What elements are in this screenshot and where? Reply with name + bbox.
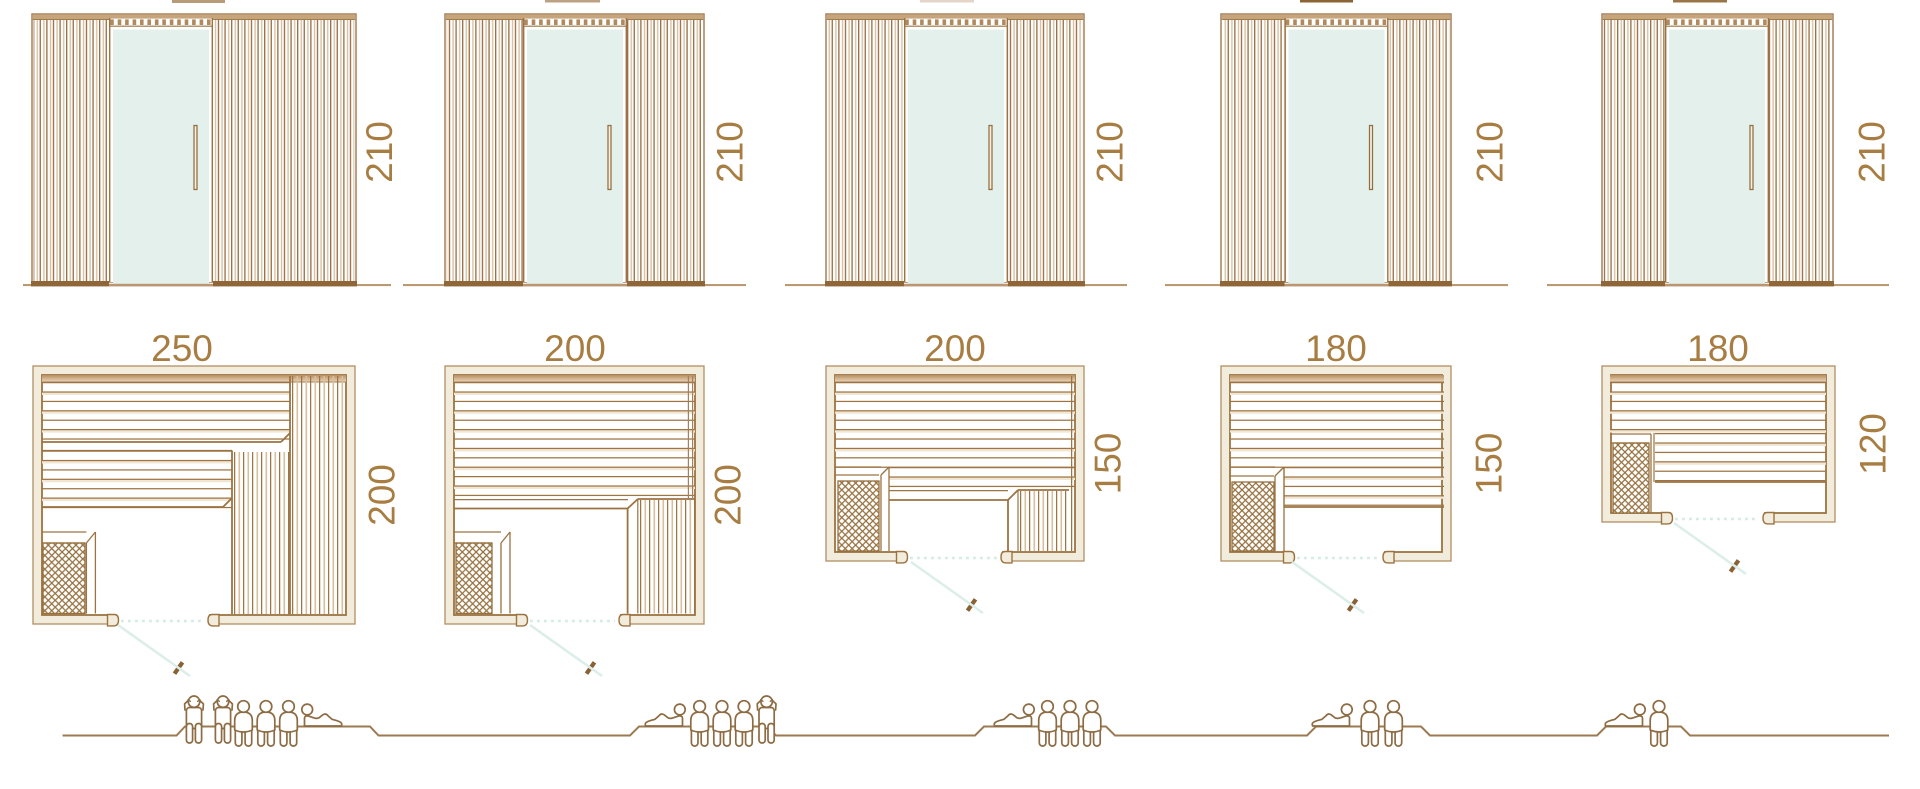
svg-text:180: 180 bbox=[1687, 328, 1749, 369]
svg-text:210: 210 bbox=[1470, 121, 1511, 183]
svg-text:200: 200 bbox=[924, 328, 986, 369]
svg-text:210: 210 bbox=[1090, 121, 1131, 183]
svg-text:180: 180 bbox=[1305, 328, 1367, 369]
svg-text:200: 200 bbox=[362, 464, 403, 526]
svg-text:120: 120 bbox=[1853, 413, 1894, 475]
svg-text:210: 210 bbox=[710, 121, 751, 183]
svg-text:150: 150 bbox=[1469, 433, 1510, 495]
svg-text:250: 250 bbox=[151, 328, 213, 369]
svg-text:200: 200 bbox=[544, 328, 606, 369]
svg-text:150: 150 bbox=[1088, 433, 1129, 495]
svg-text:200: 200 bbox=[708, 464, 749, 526]
svg-text:210: 210 bbox=[359, 121, 400, 183]
svg-text:210: 210 bbox=[1852, 121, 1893, 183]
